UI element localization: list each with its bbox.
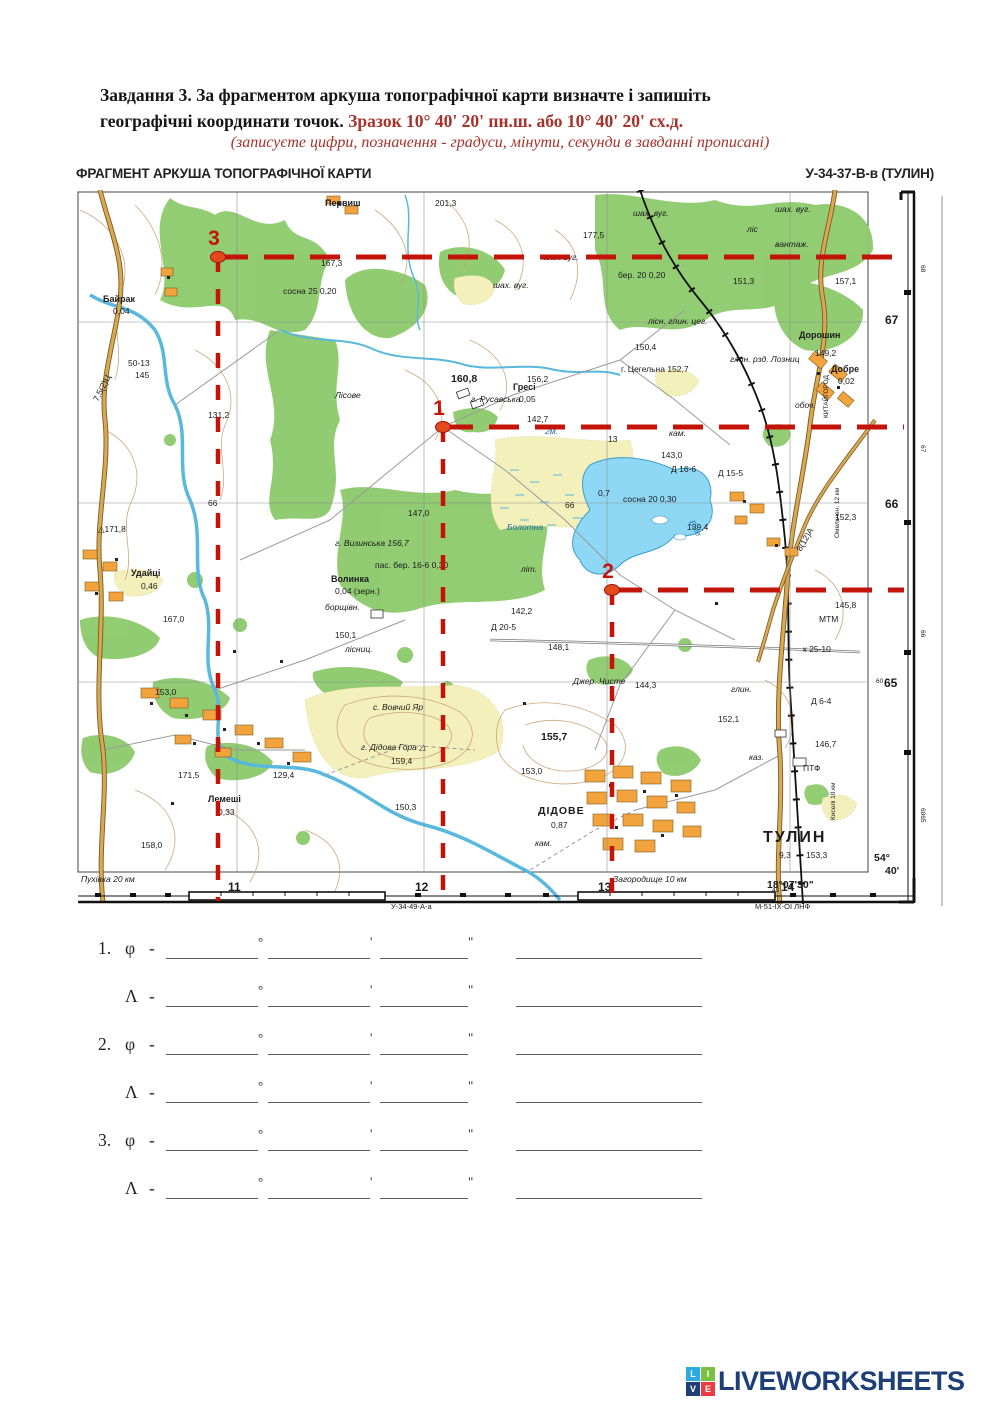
blank-seconds[interactable] bbox=[380, 1032, 468, 1055]
map-label: 148,1 bbox=[548, 642, 570, 652]
map-label: 158,0 bbox=[141, 840, 163, 850]
map-label: ліс bbox=[746, 224, 759, 234]
coordinate-symbol: Λ bbox=[125, 1082, 149, 1103]
logo-tile-i: I bbox=[701, 1367, 715, 1381]
note-text: (записуєте цифри, позначення - градуси, … bbox=[0, 134, 1000, 152]
map-label: 50-13 bbox=[128, 358, 150, 368]
map-label: 6065 bbox=[919, 808, 926, 823]
map-label: глин. bbox=[731, 684, 752, 694]
map-label: 65 bbox=[884, 676, 898, 690]
map-label: пас. бер. 16-6 0,30 bbox=[375, 560, 448, 570]
map-label: 0,04 (зерн.) bbox=[335, 586, 380, 596]
map-label: 152,1 bbox=[718, 714, 740, 724]
map-label: Гресі bbox=[513, 382, 536, 392]
coordinate-symbol: φ bbox=[125, 938, 149, 959]
map-label: М-51-ІХ-ОІ ЛНФ bbox=[755, 902, 811, 911]
map-label: г. Дідова Гора △ bbox=[361, 742, 426, 752]
blank-direction[interactable] bbox=[516, 1128, 702, 1151]
minute-symbol: ' bbox=[370, 934, 380, 950]
map-label: 0,46 bbox=[141, 581, 158, 591]
map-label: 167,0 bbox=[163, 614, 185, 624]
sample-text: Зразок 10° 40' 20' пн.ш. або 10° 40' 20'… bbox=[348, 111, 683, 131]
map-label: 153,0 bbox=[155, 687, 177, 697]
map-label: 171,5 bbox=[178, 770, 200, 780]
blank-degrees[interactable] bbox=[166, 936, 258, 959]
map-label: 144,3 bbox=[635, 680, 657, 690]
blank-direction[interactable] bbox=[516, 1080, 702, 1103]
map-label: Волинка bbox=[331, 574, 370, 584]
blank-direction[interactable] bbox=[516, 1176, 702, 1199]
map-label: вантаж. bbox=[775, 239, 809, 249]
blank-minutes[interactable] bbox=[268, 936, 370, 959]
map-label: літ. bbox=[520, 564, 537, 574]
blank-minutes[interactable] bbox=[268, 1032, 370, 1055]
answer-row: 3.φ-°'" bbox=[98, 1122, 748, 1151]
degree-symbol: ° bbox=[258, 934, 268, 950]
blank-seconds[interactable] bbox=[380, 1128, 468, 1151]
second-symbol: " bbox=[468, 982, 478, 998]
map-label: Добре bbox=[831, 364, 859, 374]
blank-minutes[interactable] bbox=[268, 1080, 370, 1103]
map-label: △171,8 bbox=[98, 524, 126, 534]
map-label: 142,2 bbox=[511, 606, 533, 616]
map-label: Лемеші bbox=[208, 794, 241, 804]
map-label: 14 bbox=[781, 880, 795, 894]
degree-symbol: ° bbox=[258, 1078, 268, 1094]
map-label: 40' bbox=[885, 865, 899, 877]
map-point-number: 3 bbox=[208, 227, 220, 250]
map-label: к 25-10 bbox=[803, 644, 831, 654]
minute-symbol: ' bbox=[370, 982, 380, 998]
second-symbol: " bbox=[468, 1126, 478, 1142]
answer-row: 2.φ-°'" bbox=[98, 1026, 748, 1055]
map-label: 13 bbox=[608, 434, 618, 444]
map-label: 177,5 bbox=[583, 230, 605, 240]
liveworksheets-logo: LIVE LIVEWORKSHEETS bbox=[686, 1366, 965, 1397]
map-label: 153,0 bbox=[521, 766, 543, 776]
map-label: Омельчен. 12 км bbox=[834, 487, 841, 538]
map-label: глин. рзд. Лозниц bbox=[730, 354, 800, 364]
second-symbol: " bbox=[468, 934, 478, 950]
blank-seconds[interactable] bbox=[380, 936, 468, 959]
dash-separator: - bbox=[149, 986, 166, 1007]
map-label: ТУЛИН bbox=[763, 829, 826, 846]
map-title: ФРАГМЕНТ АРКУША ТОПОГРАФІЧНОЇ КАРТИ bbox=[76, 166, 371, 181]
map-label: 155,7 bbox=[541, 731, 567, 743]
map-label: Удайці bbox=[131, 568, 160, 578]
map-label: 0,87 bbox=[551, 820, 568, 830]
blank-degrees[interactable] bbox=[166, 1176, 258, 1199]
row-number: 2. bbox=[98, 1034, 125, 1055]
map-label: ПТФ bbox=[803, 763, 820, 773]
map-label: г. Русавська bbox=[471, 394, 521, 404]
map-title-row: ФРАГМЕНТ АРКУША ТОПОГРАФІЧНОЇ КАРТИ У-34… bbox=[76, 166, 934, 181]
map-label: 9,3 bbox=[779, 850, 791, 860]
blank-minutes[interactable] bbox=[268, 984, 370, 1007]
answer-section: 1.φ-°'"Λ-°'"2.φ-°'"Λ-°'"3.φ-°'"Λ-°'" bbox=[98, 930, 748, 1218]
dash-separator: - bbox=[149, 1034, 166, 1055]
logo-tile-v: V bbox=[686, 1382, 700, 1396]
task-text-line2: географічні координати точок. bbox=[100, 111, 344, 131]
map-label: 159,4 bbox=[391, 756, 413, 766]
blank-degrees[interactable] bbox=[166, 1080, 258, 1103]
minute-symbol: ' bbox=[370, 1030, 380, 1046]
map-label: МТМ bbox=[819, 614, 838, 624]
map-label: 13 bbox=[598, 880, 612, 894]
map-label: г. Цегельна 152,7 bbox=[621, 364, 689, 374]
second-symbol: " bbox=[468, 1078, 478, 1094]
map-point-3 bbox=[211, 252, 226, 263]
logo-text: LIVEWORKSHEETS bbox=[718, 1366, 965, 1397]
degree-symbol: ° bbox=[258, 982, 268, 998]
blank-degrees[interactable] bbox=[166, 1128, 258, 1151]
map-label: 149,2 bbox=[815, 348, 837, 358]
map-label: кам. bbox=[535, 838, 552, 848]
map-label: обоч. bbox=[795, 400, 816, 410]
blank-direction[interactable] bbox=[516, 984, 702, 1007]
blank-seconds[interactable] bbox=[380, 984, 468, 1007]
topographic-map: 201,3Первиш177,5шах. вуг.шах. вуг.лісшах… bbox=[75, 190, 935, 912]
blank-degrees[interactable] bbox=[166, 984, 258, 1007]
map-label: шах. вуг. bbox=[775, 204, 811, 214]
map-label: 150,3 bbox=[395, 802, 417, 812]
map-label: 54° bbox=[874, 852, 890, 864]
map-label: лісн. глин. цег. bbox=[647, 316, 708, 326]
map-label: Дорошин bbox=[799, 330, 840, 340]
minute-symbol: ' bbox=[370, 1174, 380, 1190]
map-label: шах. вуг. bbox=[633, 208, 669, 218]
blank-degrees[interactable] bbox=[166, 1032, 258, 1055]
map-label: 147,0 bbox=[408, 508, 430, 518]
dash-separator: - bbox=[149, 938, 166, 959]
map-label: каз. bbox=[749, 752, 764, 762]
map-label: 201,3 bbox=[435, 198, 457, 208]
map-label: Киселі 10 км bbox=[829, 782, 837, 820]
map-label: 0,02 bbox=[838, 376, 855, 386]
logo-icon: LIVE bbox=[686, 1367, 715, 1396]
map-label: У-34-49-А-а bbox=[391, 902, 432, 911]
blank-minutes[interactable] bbox=[268, 1128, 370, 1151]
map-label: г. Визинська 156,7 bbox=[335, 538, 409, 548]
map-label: Байрак bbox=[103, 294, 136, 304]
map-label: Загородище 10 км bbox=[613, 874, 687, 884]
map-sheet-code: У-34-37-В-в (ТУЛИН) bbox=[806, 166, 934, 181]
task-text-line1: Завдання 3. За фрагментом аркуша топогра… bbox=[100, 85, 711, 105]
map-label: с. Вовчий Яр bbox=[373, 702, 423, 712]
second-symbol: " bbox=[468, 1174, 478, 1190]
map-label: 0,7 bbox=[598, 488, 610, 498]
task-header: Завдання 3. За фрагментом аркуша топогра… bbox=[100, 82, 925, 135]
map-label: бер. 20 0,20 bbox=[618, 270, 666, 280]
map-label: 60 bbox=[876, 678, 884, 685]
map-label: 157,1 bbox=[835, 276, 857, 286]
map-label: Д 20-5 bbox=[491, 622, 516, 632]
blank-minutes[interactable] bbox=[268, 1176, 370, 1199]
logo-tile-l: L bbox=[686, 1367, 700, 1381]
map-label: Д 6-4 bbox=[811, 696, 832, 706]
coordinate-symbol: Λ bbox=[125, 986, 149, 1007]
coordinate-symbol: φ bbox=[125, 1130, 149, 1151]
page-edge-shadow bbox=[941, 196, 943, 906]
blank-seconds[interactable] bbox=[380, 1080, 468, 1103]
map-label: 150,4 bbox=[635, 342, 657, 352]
map-label: 66 bbox=[885, 497, 899, 511]
blank-seconds[interactable] bbox=[380, 1176, 468, 1199]
map-label: борщівн. bbox=[325, 602, 360, 612]
minute-symbol: ' bbox=[370, 1126, 380, 1142]
map-label: шах. вуг. bbox=[493, 280, 529, 290]
map-label: Пухівка 20 км bbox=[81, 874, 135, 884]
map-label: Лісове bbox=[334, 390, 361, 400]
map-label: 11 bbox=[228, 880, 241, 894]
map-label: сосна 25 0,20 bbox=[283, 286, 337, 296]
map-label: 143,0 bbox=[661, 450, 683, 460]
map-label: 12 bbox=[415, 880, 429, 894]
map-label: лісниц. bbox=[344, 644, 373, 654]
map-point-number: 1 bbox=[433, 397, 445, 420]
blank-direction[interactable] bbox=[516, 1032, 702, 1055]
map-label: 153,3 bbox=[806, 850, 828, 860]
second-symbol: " bbox=[468, 1030, 478, 1046]
map-label: 43 bbox=[772, 887, 780, 894]
coordinate-symbol: φ bbox=[125, 1034, 149, 1055]
map-label: 67 bbox=[919, 445, 926, 453]
minute-symbol: ' bbox=[370, 1078, 380, 1094]
answer-row: Λ-°'" bbox=[98, 1074, 748, 1103]
map-label: КИТАЙГОРОД bbox=[821, 374, 830, 418]
map-point-2 bbox=[605, 585, 620, 596]
map-fragment: 201,3Первиш177,5шах. вуг.шах. вуг.лісшах… bbox=[75, 190, 935, 912]
answer-row: Λ-°'" bbox=[98, 978, 748, 1007]
map-label: сосна 20 0,30 bbox=[623, 494, 677, 504]
map-label: 146,7 bbox=[815, 739, 837, 749]
map-label: 160,8 bbox=[451, 373, 477, 385]
map-label: 67 bbox=[885, 313, 899, 327]
answer-row: Λ-°'" bbox=[98, 1170, 748, 1199]
map-label: Первиш bbox=[325, 198, 361, 208]
map-label: 145 bbox=[135, 370, 149, 380]
dash-separator: - bbox=[149, 1178, 166, 1199]
map-point-1 bbox=[436, 422, 451, 433]
map-label: ДІДОВЕ bbox=[538, 805, 585, 817]
map-label: 129,4 bbox=[273, 770, 295, 780]
map-terrain bbox=[78, 190, 915, 904]
coordinate-symbol: Λ bbox=[125, 1178, 149, 1199]
dash-separator: - bbox=[149, 1082, 166, 1103]
row-number: 3. bbox=[98, 1130, 125, 1151]
degree-symbol: ° bbox=[258, 1174, 268, 1190]
answer-row: 1.φ-°'" bbox=[98, 930, 748, 959]
map-label: 0,04 bbox=[113, 306, 130, 316]
degree-symbol: ° bbox=[258, 1030, 268, 1046]
map-label: 66 bbox=[919, 630, 926, 638]
map-label: Джер. Чисте bbox=[572, 676, 626, 686]
blank-direction[interactable] bbox=[516, 936, 702, 959]
map-label: 142,7 bbox=[527, 414, 549, 424]
map-label: 66 bbox=[565, 500, 575, 510]
map-label: 151,3 bbox=[733, 276, 755, 286]
map-label: 145,8 bbox=[835, 600, 857, 610]
map-label: 66 bbox=[208, 498, 218, 508]
row-number: 1. bbox=[98, 938, 125, 959]
map-label: Д 15-5 bbox=[718, 468, 743, 478]
map-label: 150,1 bbox=[335, 630, 357, 640]
logo-tile-e: E bbox=[701, 1382, 715, 1396]
degree-symbol: ° bbox=[258, 1126, 268, 1142]
map-label: 68 bbox=[919, 265, 926, 273]
map-label: 0,05 bbox=[519, 394, 536, 404]
map-label: 0,33 bbox=[218, 807, 235, 817]
dash-separator: - bbox=[149, 1130, 166, 1151]
map-point-number: 2 bbox=[602, 560, 614, 583]
map-label: Д 16-6 bbox=[671, 464, 696, 474]
map-label: Болотна bbox=[507, 522, 543, 532]
